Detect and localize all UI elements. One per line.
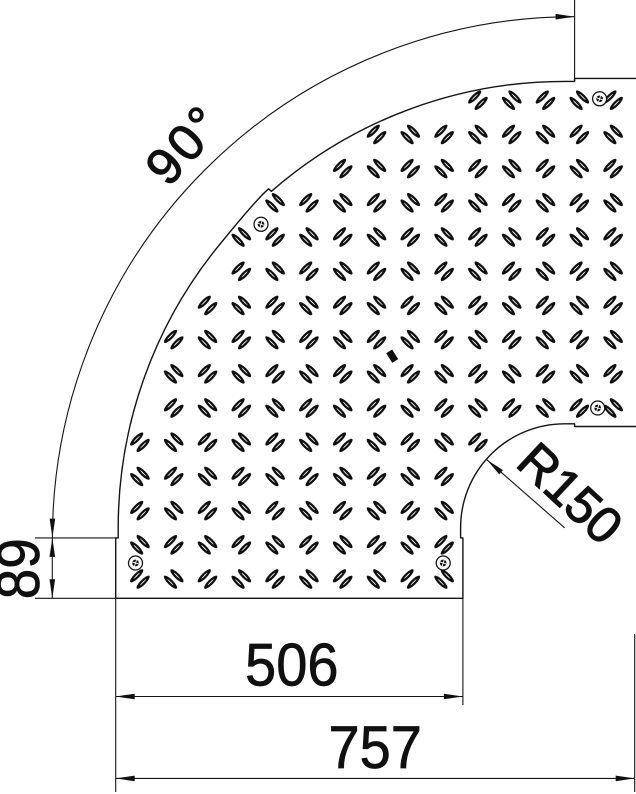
svg-text:506: 506 bbox=[245, 631, 339, 699]
svg-text:89: 89 bbox=[0, 538, 52, 599]
svg-text:757: 757 bbox=[328, 713, 422, 781]
